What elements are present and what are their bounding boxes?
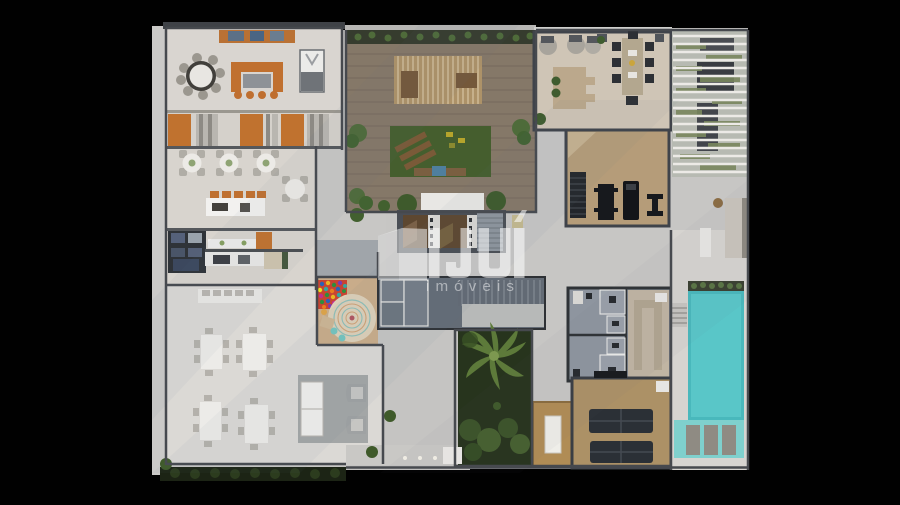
svg-text:imóveis: imóveis — [426, 278, 520, 295]
